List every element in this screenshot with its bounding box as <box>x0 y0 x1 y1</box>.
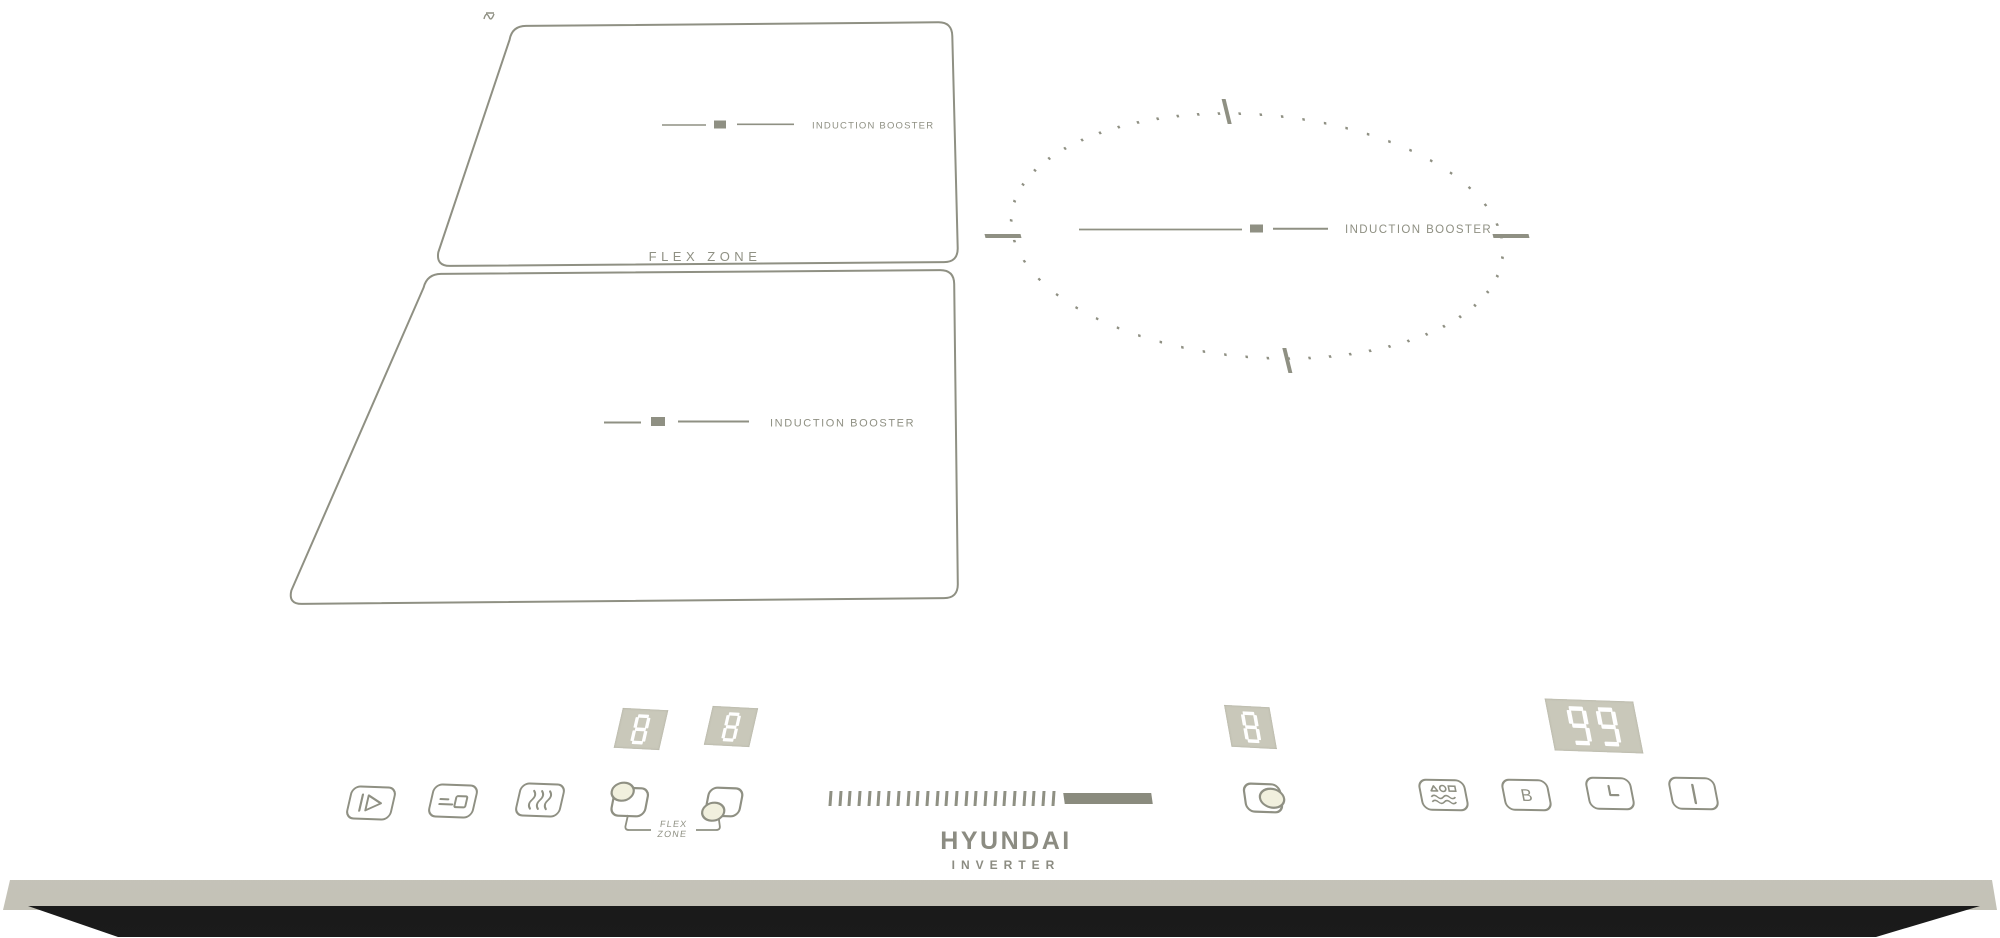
power-level-slider[interactable] <box>829 788 1163 808</box>
seven-segment-digit <box>1563 704 1596 747</box>
slider-level-bar <box>1063 793 1153 804</box>
flex-zone-etched-label: FLEX ZONE <box>649 249 762 264</box>
seven-segment-digit <box>1237 709 1263 744</box>
flex-zone-lower-select-button[interactable] <box>697 783 751 822</box>
seven-segment-digit <box>718 710 744 743</box>
flex-upper-level-display <box>614 708 669 750</box>
slider-tick[interactable] <box>877 791 881 806</box>
right-zone-level-display <box>1224 705 1277 749</box>
upper-booster-label: INDUCTION BOOSTER <box>812 121 934 132</box>
lower-booster-label: INDUCTION BOOSTER <box>770 418 915 430</box>
slider-tick[interactable] <box>867 791 871 806</box>
flex-lower-level-display <box>704 706 758 747</box>
slider-tick[interactable] <box>983 791 987 806</box>
slider-tick[interactable] <box>848 791 852 806</box>
slider-tick[interactable] <box>858 791 862 806</box>
power-button[interactable] <box>1667 777 1721 811</box>
heat-waves-icon <box>520 786 560 813</box>
slider-tick[interactable] <box>916 791 920 806</box>
zone-right-icon <box>1235 776 1293 820</box>
slider-tick[interactable] <box>1042 791 1046 806</box>
flex-label-line1: FLEX <box>645 819 702 829</box>
slider-tick[interactable] <box>1022 791 1026 806</box>
lower-zone-booster-mark: INDUCTION BOOSTER <box>604 417 915 430</box>
child-lock-button[interactable] <box>426 783 479 819</box>
slider-tick[interactable] <box>896 791 900 806</box>
flex-zone-button-label: FLEX ZONE <box>644 819 703 840</box>
key-lock-icon <box>432 787 474 814</box>
slider-tick[interactable] <box>974 791 978 806</box>
slider-tick[interactable] <box>828 791 832 806</box>
seven-segment-digit <box>628 712 654 746</box>
right-zone-booster-mark: INDUCTION BOOSTER <box>1079 224 1492 236</box>
booster-button-label: B <box>1519 786 1534 803</box>
slider-tick[interactable] <box>1003 791 1007 806</box>
booster-button[interactable]: B <box>1500 779 1553 812</box>
zone-upper-icon <box>601 778 659 824</box>
slider-tick[interactable] <box>1032 791 1036 806</box>
flex-label-line2: ZONE <box>644 829 701 839</box>
slider-tick[interactable] <box>935 791 939 806</box>
slider-tick[interactable] <box>954 791 958 806</box>
cookware-waves-icon <box>1422 782 1465 809</box>
slider-tick[interactable] <box>964 791 968 806</box>
upper-zone-booster-mark: INDUCTION BOOSTER <box>662 121 934 132</box>
flex-zone-upper-select-button[interactable] <box>604 781 657 820</box>
brand-logo: HYUNDAI <box>928 827 1084 856</box>
pause-stop-go-button[interactable] <box>344 785 397 821</box>
slider-tick[interactable] <box>1051 791 1055 806</box>
right-zone-dotted-circle <box>952 99 1563 373</box>
seven-segment-digit <box>1592 705 1625 748</box>
flex-zone-upper-outline <box>438 22 958 266</box>
slider-tick[interactable] <box>945 791 949 806</box>
cooktop-photo: FLEX ZONE INDUCTION BOOSTER INDUCTION BO… <box>0 0 2000 938</box>
clock-hands-icon <box>1592 780 1627 807</box>
slider-tick[interactable] <box>838 791 842 806</box>
slider-tick[interactable] <box>887 791 891 806</box>
keep-warm-button[interactable] <box>513 782 566 818</box>
right-booster-label: INDUCTION BOOSTER <box>1345 224 1492 236</box>
right-zone-select-button[interactable] <box>1236 778 1292 818</box>
slider-tick[interactable] <box>1013 791 1017 806</box>
slider-tick[interactable] <box>925 791 929 806</box>
etched-corner-mark <box>484 13 494 19</box>
power-bar-icon <box>1676 780 1711 807</box>
pause-play-icon <box>350 789 392 816</box>
timer-button[interactable] <box>1584 777 1637 811</box>
timer-display <box>1545 698 1644 753</box>
brand-series-label: INVERTER <box>928 858 1084 872</box>
zone-lower-icon <box>694 780 752 826</box>
slider-tick[interactable] <box>993 791 997 806</box>
flex-zone-lower-outline <box>291 270 958 604</box>
auto-programs-button[interactable] <box>1417 779 1470 812</box>
slider-tick[interactable] <box>906 791 910 806</box>
